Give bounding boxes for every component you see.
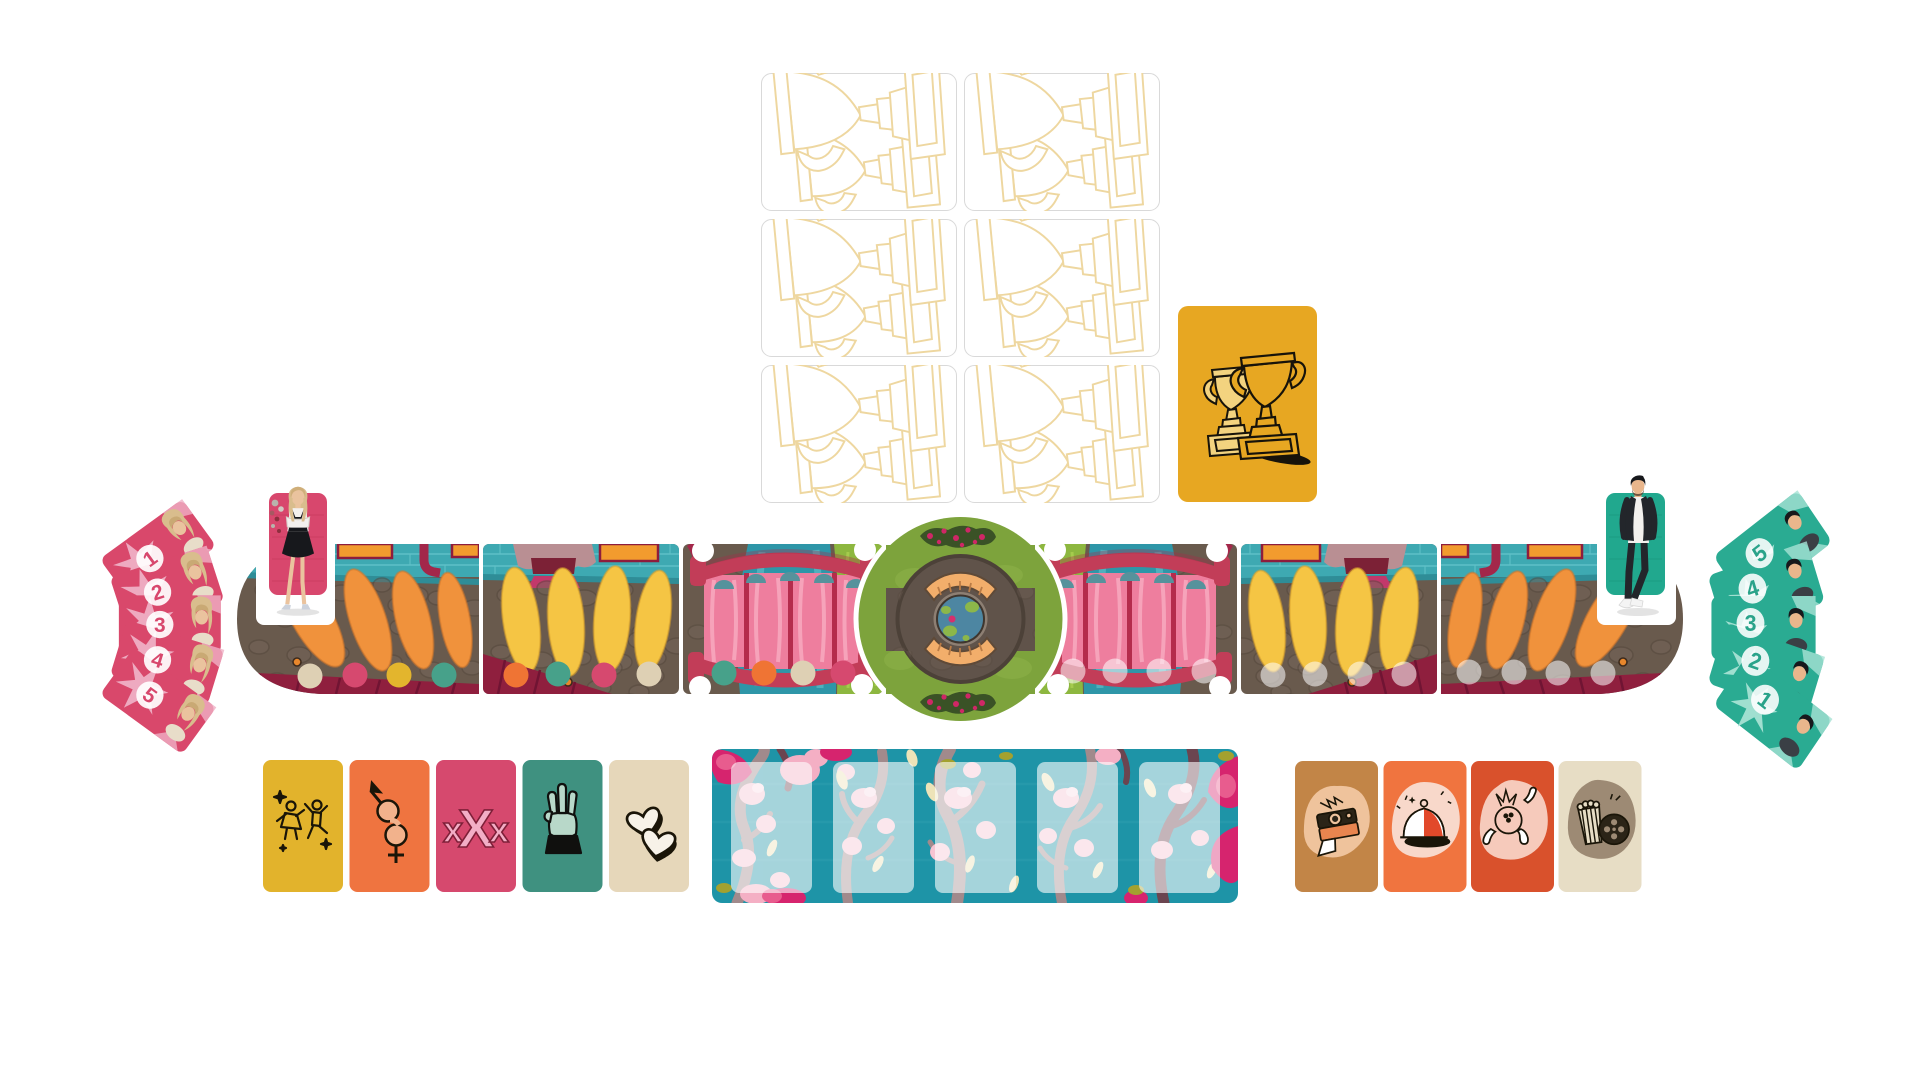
svg-text:3: 3 [154, 614, 166, 637]
svg-text:x: x [489, 809, 509, 850]
svg-text:3: 3 [1745, 610, 1757, 636]
